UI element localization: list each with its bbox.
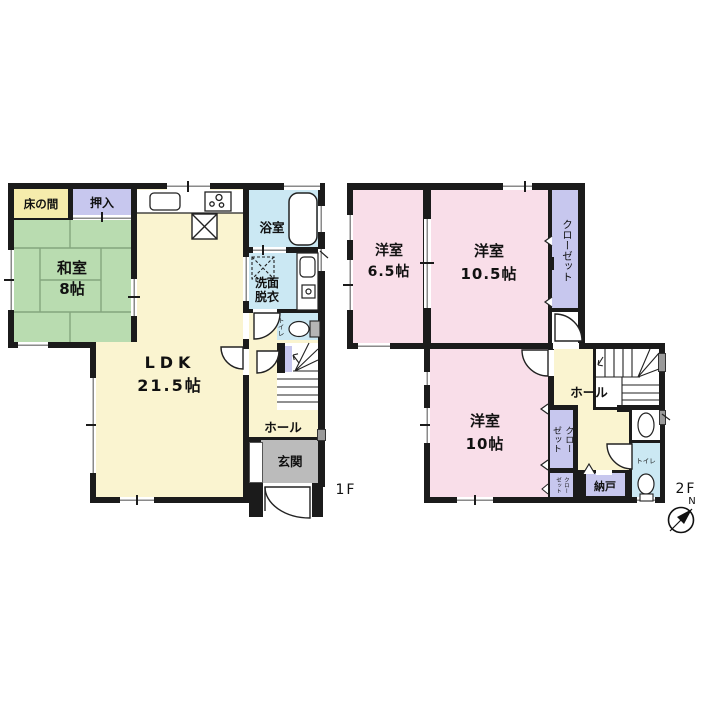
kitchen-sink-stove-icon <box>137 192 243 213</box>
door-10-room <box>522 350 548 376</box>
label-oshiire: 押入 <box>73 196 131 211</box>
label-floor-1f: 1F <box>326 482 366 500</box>
refrigerator-icon <box>192 214 217 239</box>
label-washroom-line2: 脱衣 <box>241 291 293 305</box>
label-bath: 浴室 <box>242 220 302 236</box>
bathtub-icon <box>289 193 317 245</box>
door-hall-1f <box>257 351 279 373</box>
label-nando: 納戸 <box>582 480 628 494</box>
label-closet-top: クローゼット <box>557 197 573 303</box>
toilet-2f-icon <box>638 474 654 501</box>
label-washroom-line1: 洗面 <box>241 277 293 291</box>
label-room-65-name: 洋室 <box>349 241 429 262</box>
door-105-room <box>555 314 582 341</box>
label-tokonoma: 床の間 <box>14 197 68 211</box>
label-toilet-2f: トイレ <box>630 457 662 465</box>
label-room-105-size: 10.5帖 <box>432 263 546 286</box>
label-closet-2f-big-left: ゼット <box>550 414 561 464</box>
toilet-1f-icon <box>289 321 320 337</box>
label-room-10: 洋室 10帖 <box>427 410 543 455</box>
label-washroom: 洗面 脱衣 <box>241 277 293 305</box>
label-compass-north: N <box>684 496 700 509</box>
label-washitsu-size: 8帖 <box>26 279 118 300</box>
label-hall-2f: ホール <box>558 385 620 401</box>
label-washitsu-name: 和室 <box>26 258 118 279</box>
label-ldk-size: 21.5帖 <box>108 374 232 397</box>
label-room-10-name: 洋室 <box>427 410 543 433</box>
label-room-10-size: 10帖 <box>427 433 543 456</box>
label-washitsu: 和室 8帖 <box>26 258 118 300</box>
washbasin-1f-icon <box>297 253 318 310</box>
label-genkan: 玄関 <box>264 454 316 470</box>
label-toilet-1f: トイレ <box>276 315 284 339</box>
washbasin-2f-icon <box>638 413 654 437</box>
floor-plan: 床の間 押入 和室 8帖 LDK 21.5帖 浴室 洗面 脱衣 トイレ ホール … <box>0 0 714 714</box>
compass-icon <box>669 508 694 533</box>
label-room-65-size: 6.5帖 <box>349 262 429 283</box>
label-ldk-name: LDK <box>108 351 232 374</box>
label-room-105: 洋室 10.5帖 <box>432 240 546 285</box>
label-room-105-name: 洋室 <box>432 240 546 263</box>
label-hall-1f: ホール <box>253 420 313 436</box>
label-closet-2f-big: ゼット クロー <box>549 414 574 464</box>
nando-door-marker <box>583 464 595 474</box>
label-closet-2f-small-left: ゼット <box>554 475 561 496</box>
stairs-1f-icon <box>277 343 318 402</box>
door-toilet-2f <box>607 444 632 469</box>
label-closet-2f-small-right: クロー <box>562 475 569 496</box>
label-closet-2f-small: ゼット クロー <box>549 475 574 496</box>
label-room-65: 洋室 6.5帖 <box>349 241 429 283</box>
label-ldk: LDK 21.5帖 <box>108 351 232 397</box>
label-closet-2f-big-right: クロー <box>562 414 573 464</box>
front-door <box>265 487 310 518</box>
